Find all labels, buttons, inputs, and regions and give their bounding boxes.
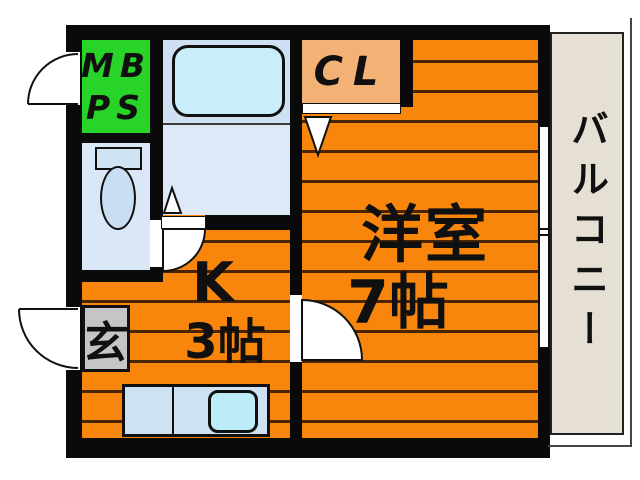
balcony-label: バルコニー — [552, 40, 622, 428]
meter-box-label-2: PS — [86, 87, 146, 128]
door-opening-service — [66, 52, 80, 105]
closet: CL — [302, 40, 400, 103]
window-meeting-rail-2 — [538, 234, 550, 236]
bathtub — [172, 45, 285, 117]
kitchen-sink — [208, 390, 258, 433]
closet-door-track — [302, 103, 401, 114]
meter-box-label-1: MB — [81, 45, 151, 86]
door-opening-entrance — [66, 307, 80, 370]
wall-center-lower — [290, 362, 302, 438]
toilet-bowl — [100, 166, 136, 230]
balcony-window — [538, 127, 550, 347]
wall-toilet-bottom — [66, 270, 163, 282]
wall-top — [66, 25, 550, 40]
balcony-text: バルコニー — [560, 109, 615, 359]
meter-box: MB PS — [82, 40, 150, 133]
door-opening-mainroom — [290, 295, 302, 362]
counter-divider — [172, 386, 174, 435]
main-room-size: 7帖 — [318, 264, 478, 330]
outline-vertical — [630, 18, 632, 447]
washroom — [163, 125, 290, 215]
door-track-washroom — [161, 216, 206, 229]
wall-bottom — [66, 438, 550, 458]
closet-label: CL — [314, 49, 389, 95]
floor-plan: MB PS CL バルコニー 洋室 7帖 K 3 — [0, 0, 640, 480]
main-room-name: 洋室 — [320, 196, 530, 262]
wall-mbps-bottom — [82, 133, 150, 143]
outline-horizontal — [548, 445, 632, 447]
entrance-label: 玄 — [79, 307, 134, 370]
wall-closet-right — [400, 25, 413, 107]
wall-washroom-bottom — [205, 215, 290, 230]
kitchen-size: 3帖 — [170, 310, 280, 364]
window-meeting-rail-1 — [538, 228, 550, 230]
wall-center-upper — [290, 40, 302, 295]
